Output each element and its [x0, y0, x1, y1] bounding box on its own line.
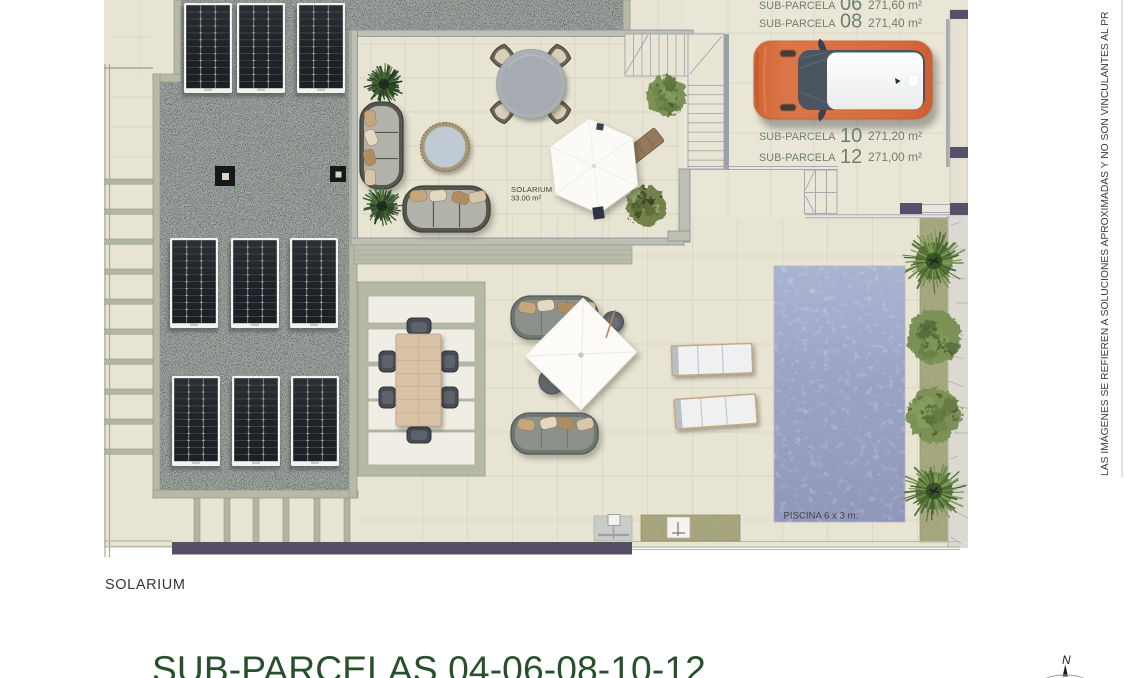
svg-text:271,20 m²: 271,20 m² [868, 129, 922, 143]
svg-text:SUB-PARCELA: SUB-PARCELA [759, 131, 836, 143]
svg-text:PISCINA 6 x 3 m.: PISCINA 6 x 3 m. [784, 511, 859, 522]
svg-text:08: 08 [840, 11, 862, 33]
svg-text:33.00 m²: 33.00 m² [511, 194, 541, 203]
svg-text:271,40 m²: 271,40 m² [868, 16, 922, 30]
svg-text:LAS IMÁGENES SE REFIEREN A SOL: LAS IMÁGENES SE REFIEREN A SOLUCIONES AP… [1098, 12, 1111, 476]
svg-text:SUB-PARCELA: SUB-PARCELA [759, 152, 836, 164]
svg-text:10: 10 [840, 125, 862, 147]
svg-text:SUB-PARCELA: SUB-PARCELA [759, 0, 836, 12]
svg-text:SUB-PARCELAS 04-06-08-10-12: SUB-PARCELAS 04-06-08-10-12 [152, 648, 706, 678]
svg-text:271,60 m²: 271,60 m² [868, 0, 922, 12]
svg-text:12: 12 [840, 146, 862, 168]
svg-text:N: N [1062, 653, 1071, 667]
svg-text:271,00 m²: 271,00 m² [868, 150, 922, 164]
svg-text:SOLARIUM: SOLARIUM [105, 577, 186, 593]
svg-text:SUB-PARCELA: SUB-PARCELA [759, 18, 836, 30]
